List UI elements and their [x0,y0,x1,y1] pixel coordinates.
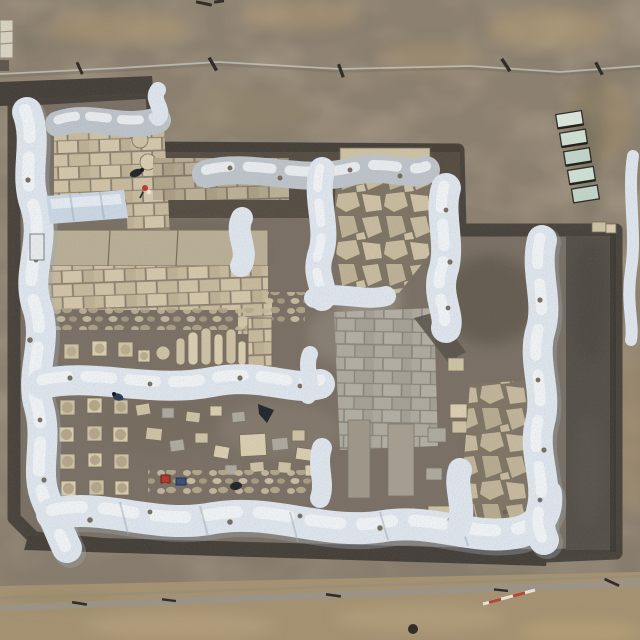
tarp-small-south-center [458,470,461,526]
tarp-covered-feature [46,190,128,224]
trench-east-wall-shadow [610,234,616,552]
column-base [89,480,104,495]
column-base [64,344,79,359]
stone-block [428,428,446,442]
column-drum [238,341,246,365]
tarp-inner-b [316,168,323,298]
column-base [60,454,75,469]
crate-blue [176,478,186,485]
tarp-east-edge-strip [629,156,633,340]
wall-stub [388,424,414,496]
tarp-west-of-pavement [308,354,310,396]
stone-block [169,439,184,452]
tarp-balk-northwest [58,116,158,124]
column-base [114,400,128,414]
column-base [88,453,102,467]
tarp-inner-a [240,218,244,266]
stone-block [162,408,174,418]
column-base [61,481,76,496]
crate-red [161,475,170,483]
stone-block [210,406,222,416]
column-drum [201,328,211,365]
tarp-balk-east-vertical [536,238,547,540]
dark-spot [408,624,418,634]
stone-block [271,437,288,451]
stone-block [292,430,305,441]
wall-stub [348,420,370,498]
tarp-fold-white [30,234,44,260]
stone-block [145,427,162,441]
column-drum [226,329,236,364]
stone-slab [239,433,266,456]
column-base [113,427,128,442]
deep-trench-east [566,234,616,552]
column-base [87,398,102,413]
stone-block [426,468,442,480]
stone-block [135,403,151,416]
aerial-photo [0,0,640,640]
column-base [118,342,133,357]
column-drum-end [156,346,170,360]
excavation-site-photo [0,0,640,640]
column-base [138,350,150,362]
stone-block [185,411,200,423]
trench-top-blocks [592,222,616,233]
column-base [92,341,107,356]
rubble-row [48,308,268,330]
pier-block [248,318,272,366]
stone-block [213,445,230,459]
column-base [448,358,464,371]
column-drum [214,334,223,365]
column-base [452,421,467,433]
column-base [450,404,467,418]
column-base [115,481,129,495]
stone-block [295,447,312,461]
tarp-piece-north [156,90,161,118]
column-drum [188,332,198,365]
stone-block [232,411,246,422]
stone-block [195,433,208,443]
column-drum [176,338,185,365]
column-base [87,426,102,441]
tarp-balk-mid-horizontal [42,375,320,388]
tarp-balk-northeast-vertical [439,186,453,328]
tarp-small-south-left [320,448,322,498]
column-base [60,400,75,415]
tarp-north-of-pavement [314,295,386,298]
column-base [114,454,129,469]
